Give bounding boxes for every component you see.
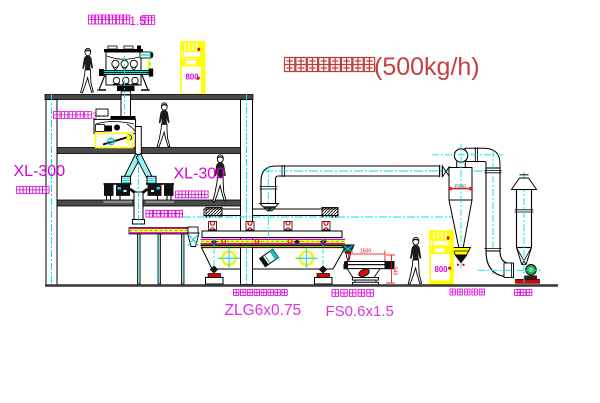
svg-text:540: 540	[392, 267, 398, 276]
svg-text:FS0.6x1.5: FS0.6x1.5	[326, 303, 394, 320]
svg-text:XL-300: XL-300	[14, 163, 66, 180]
svg-text:1.5: 1.5	[130, 16, 146, 28]
svg-text:800: 800	[435, 265, 449, 274]
svg-text:XL-300: XL-300	[174, 166, 226, 183]
svg-text:(500kg/h): (500kg/h)	[374, 53, 480, 81]
svg-text:ZLG6x0.75: ZLG6x0.75	[225, 302, 302, 319]
svg-text:1500: 1500	[360, 249, 371, 255]
